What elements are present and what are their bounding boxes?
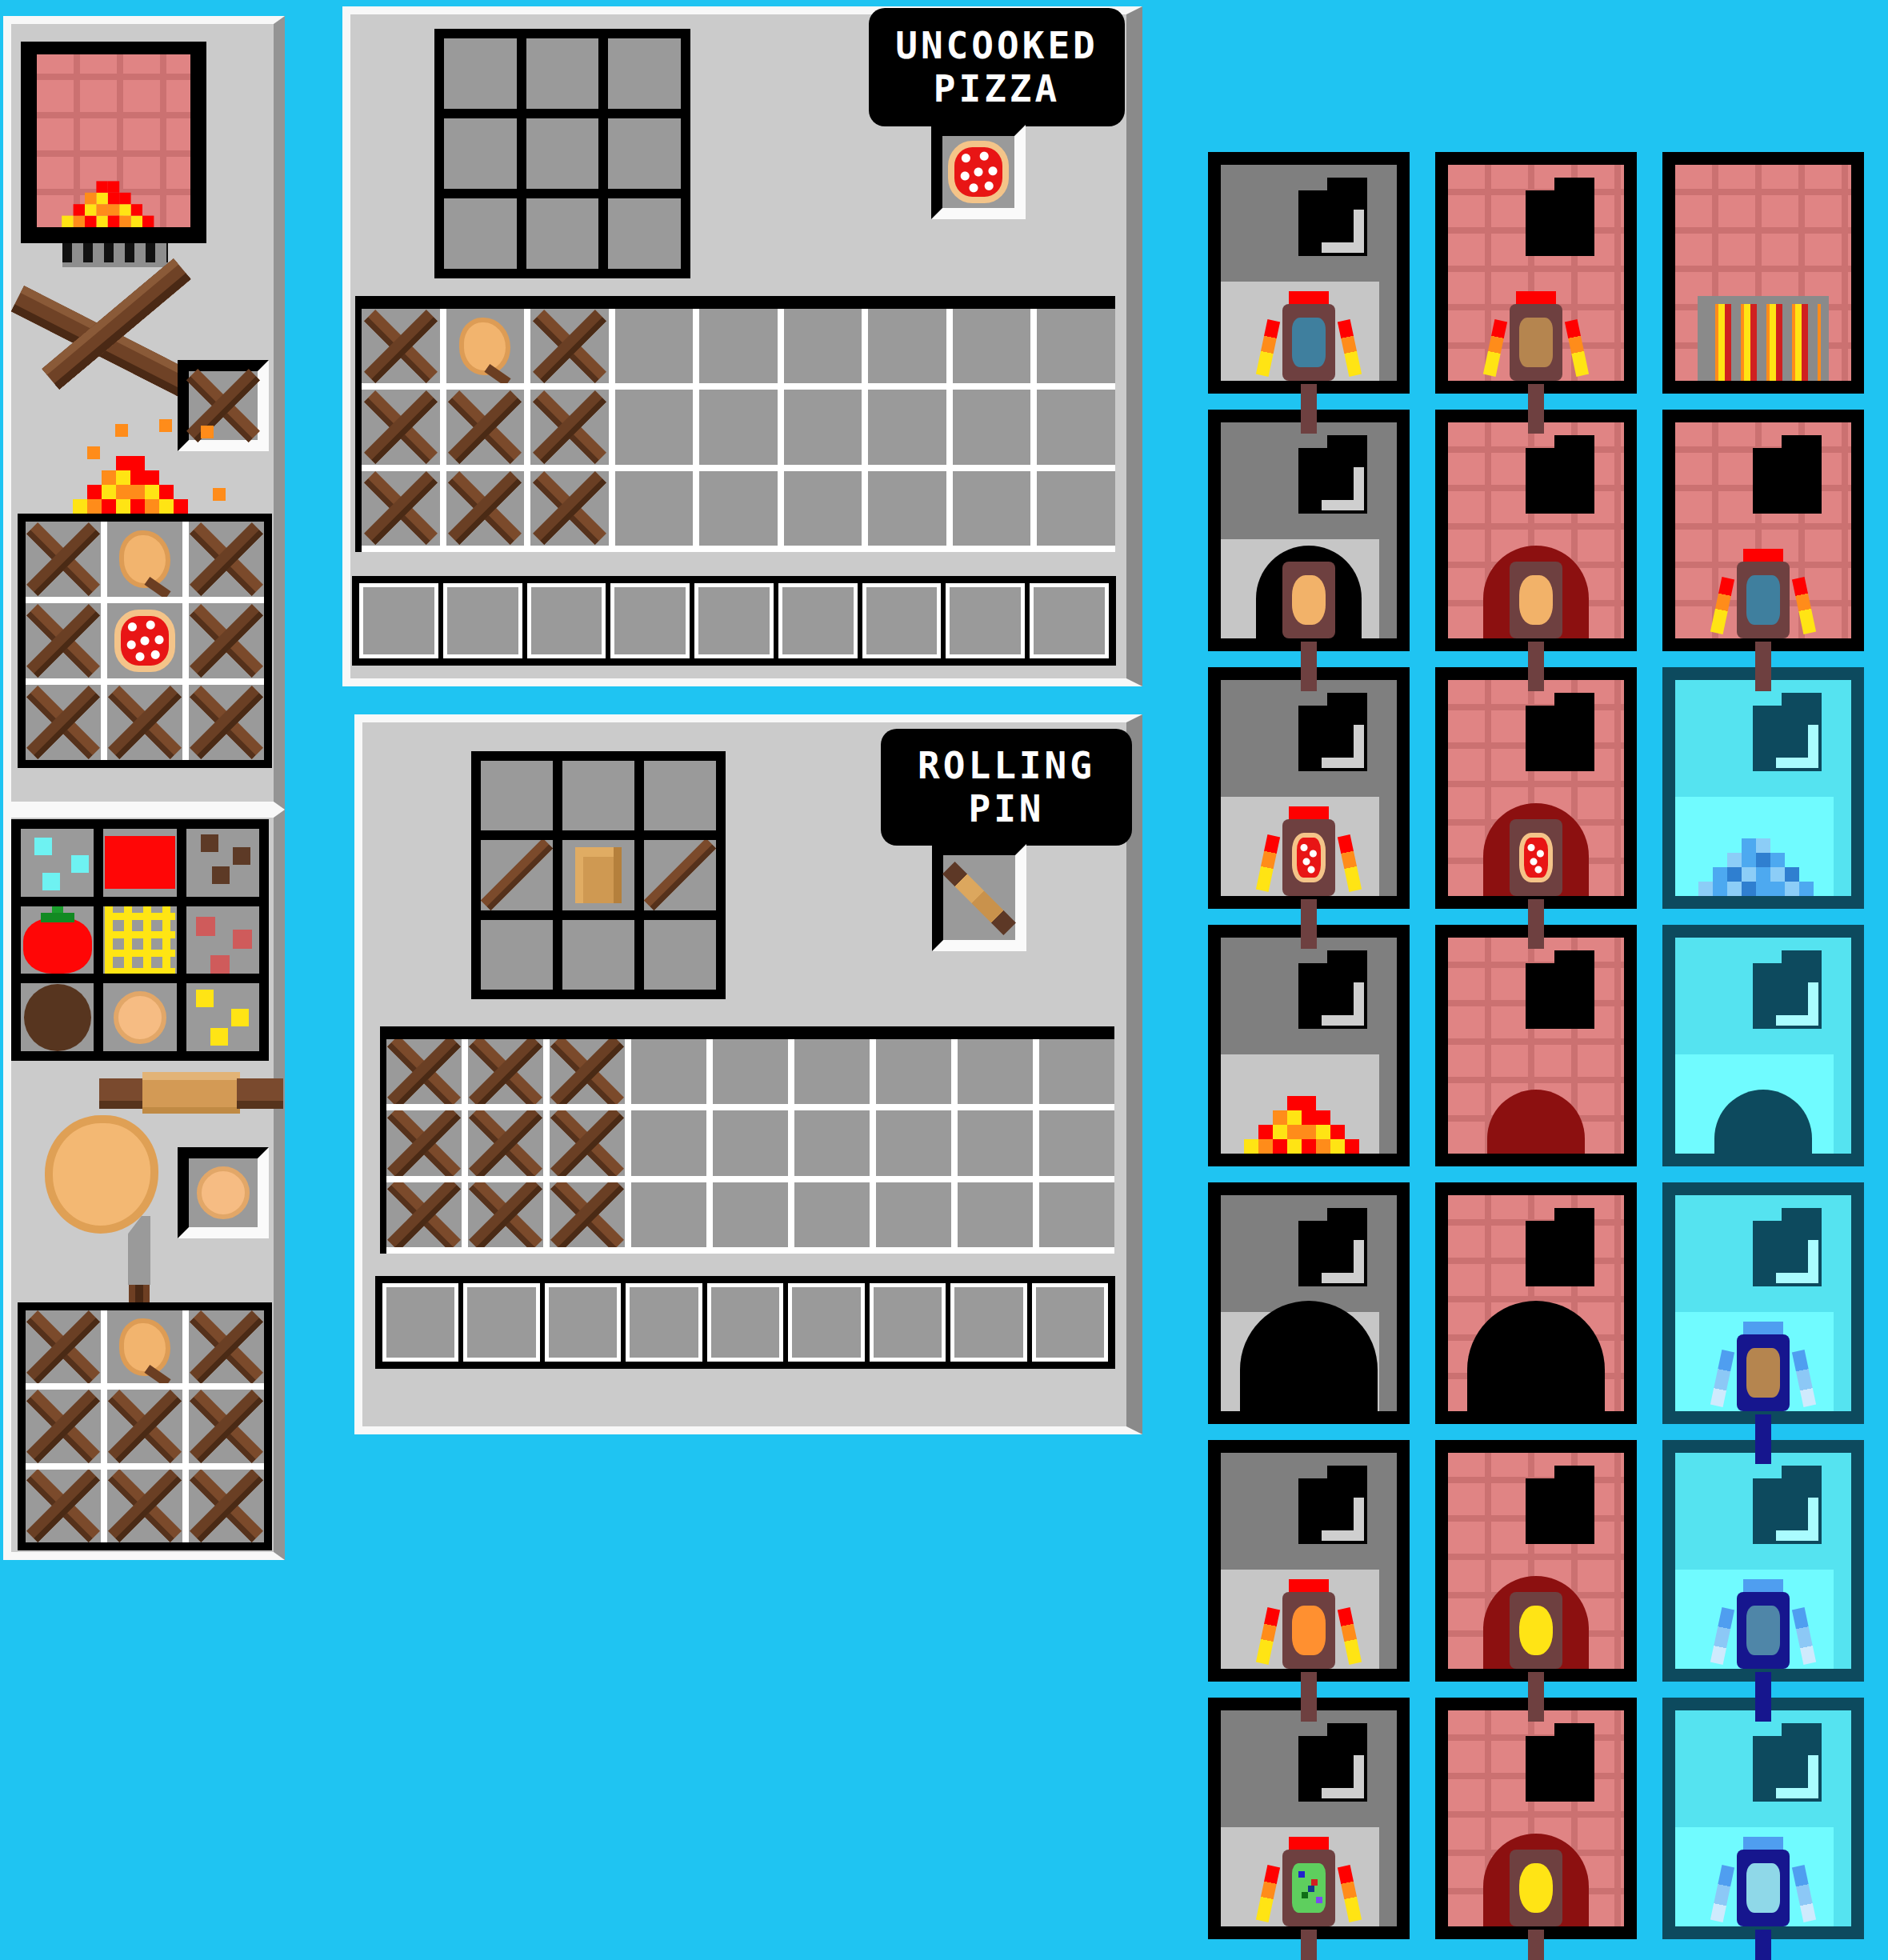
tomato-slot[interactable] xyxy=(21,906,94,974)
oven-mouth-icon xyxy=(1526,190,1594,256)
blue-item-icon xyxy=(1746,575,1780,625)
oven-tile-gray-r7c1[interactable] xyxy=(1208,1698,1410,1939)
stick-slot[interactable] xyxy=(107,1390,182,1462)
empty-slot[interactable] xyxy=(713,1110,788,1175)
empty-slot[interactable] xyxy=(526,198,599,269)
brick-oven-body xyxy=(1448,422,1624,638)
plank-slot[interactable] xyxy=(562,840,634,910)
stick-slot[interactable] xyxy=(26,522,101,597)
empty-slot[interactable] xyxy=(794,1110,870,1175)
oven-mouth-icon xyxy=(1526,1221,1594,1286)
stick-item-icon xyxy=(192,606,261,675)
stick-slot[interactable] xyxy=(468,1182,543,1247)
empty-slot[interactable] xyxy=(874,1287,942,1358)
oven-mouth-icon xyxy=(1298,1221,1367,1286)
stick-item-icon xyxy=(471,1039,540,1104)
gray-oven-body xyxy=(1221,422,1397,638)
oven-mouth-icon xyxy=(1753,1478,1822,1544)
empty-slot[interactable] xyxy=(615,390,694,464)
gray-oven-body xyxy=(1221,1710,1397,1926)
stick-slot[interactable] xyxy=(362,471,440,546)
empty-slot[interactable] xyxy=(363,587,434,654)
fire-icon xyxy=(1241,1086,1377,1154)
oven-tile-gray-r6c1[interactable] xyxy=(1208,1440,1410,1682)
empty-slot[interactable] xyxy=(1036,1287,1104,1358)
dough-item-icon xyxy=(1292,575,1326,625)
tan-item-icon xyxy=(1519,318,1553,367)
empty-slot[interactable] xyxy=(958,1039,1033,1104)
empty-slot[interactable] xyxy=(876,1110,951,1175)
oven-tile-brick-r1c3[interactable] xyxy=(1662,152,1864,394)
plank-item-icon xyxy=(575,847,622,903)
empty-slot[interactable] xyxy=(615,471,694,546)
oven-mouth-icon xyxy=(1753,1221,1822,1286)
empty-slot[interactable] xyxy=(1034,587,1105,654)
gray-oven-body xyxy=(1221,680,1397,896)
empty-slot[interactable] xyxy=(713,1039,788,1104)
stick-slot[interactable] xyxy=(550,1110,625,1175)
pizza-peel-icon xyxy=(1737,1334,1790,1411)
ember-mound-feature xyxy=(1487,1090,1585,1154)
rolling-pin-item-icon xyxy=(941,859,1018,936)
gray-oven-body xyxy=(1221,1453,1397,1669)
pizza-item-icon xyxy=(1519,833,1553,882)
stick-item-icon xyxy=(535,312,604,381)
pizza-peel-icon xyxy=(1282,304,1335,381)
pizza-peel-icon xyxy=(1282,1592,1335,1669)
stick1-slot[interactable] xyxy=(644,840,716,910)
stick-item-icon xyxy=(366,474,435,542)
flame-icon xyxy=(1743,549,1783,562)
peel-handle-icon[interactable] xyxy=(1755,642,1771,691)
empty-slot[interactable] xyxy=(953,471,1031,546)
dough-slot[interactable] xyxy=(107,522,182,597)
empty-slot[interactable] xyxy=(713,1182,788,1247)
pizza-peel-icon xyxy=(1510,304,1562,381)
peel-handle-icon[interactable] xyxy=(1301,642,1317,691)
pizza-peel-icon xyxy=(1737,1850,1790,1926)
paddle-feature xyxy=(1282,562,1335,638)
stick-item-icon xyxy=(450,474,519,542)
pepperoni-slot[interactable] xyxy=(186,906,259,974)
empty-slot[interactable] xyxy=(644,761,716,830)
cyan-specks-slot[interactable] xyxy=(21,829,94,897)
oven-mouth-icon xyxy=(1526,706,1594,771)
empty-slot[interactable] xyxy=(1037,390,1115,464)
peel-handle-icon[interactable] xyxy=(1528,384,1544,434)
stick-slot[interactable] xyxy=(26,1390,101,1462)
oven-brick-interior xyxy=(37,54,190,227)
empty-slot[interactable] xyxy=(794,1182,870,1247)
paddle-feature xyxy=(1737,1850,1790,1926)
empty-slot[interactable] xyxy=(467,1287,535,1358)
ember-mound-icon xyxy=(1487,1090,1585,1154)
crafting-grid-rolling-pin xyxy=(471,751,726,999)
empty-slot[interactable] xyxy=(699,390,778,464)
oven-tile-gray-r4c1[interactable] xyxy=(1208,925,1410,1166)
empty-slot[interactable] xyxy=(526,38,599,109)
stick-slot[interactable] xyxy=(386,1039,462,1104)
output-slot-rolling-pin[interactable] xyxy=(932,844,1026,951)
stick-item-icon xyxy=(553,1182,622,1247)
cheese-item-icon xyxy=(105,906,175,974)
oven-tile-gray-r1c1[interactable] xyxy=(1208,152,1410,394)
empty-slot[interactable] xyxy=(630,1287,698,1358)
empty-slot[interactable] xyxy=(953,309,1031,383)
stick-slot[interactable] xyxy=(446,390,525,464)
stick-slot[interactable] xyxy=(362,390,440,464)
paddle-feature xyxy=(1737,562,1790,638)
stick-slot[interactable] xyxy=(550,1039,625,1104)
oven-arch-icon xyxy=(1467,1301,1605,1411)
empty-slot[interactable] xyxy=(444,118,517,189)
cheese-bits-slot[interactable] xyxy=(186,983,259,1051)
empty-slot[interactable] xyxy=(526,118,599,189)
cheese-bits-item-icon xyxy=(188,983,257,1051)
paddle-feature xyxy=(1282,304,1335,381)
oven-tile-brick-r2c2[interactable] xyxy=(1435,410,1637,651)
label-line: UNCOOKED xyxy=(895,27,1098,64)
flame-icon xyxy=(1289,291,1329,304)
peel-handle-icon[interactable] xyxy=(1528,899,1544,949)
brown-specks-item-icon xyxy=(188,829,257,897)
stick-slot[interactable] xyxy=(107,1470,182,1542)
oven-mouth-icon xyxy=(1753,963,1822,1029)
pizza-peel-icon xyxy=(1282,562,1335,638)
flame-icon xyxy=(1483,319,1507,377)
stick-item-icon xyxy=(390,1110,458,1175)
oven-tile-ice-r5c3[interactable] xyxy=(1662,1182,1864,1424)
empty-slot[interactable] xyxy=(792,1287,860,1358)
stick-item-icon xyxy=(553,1110,622,1175)
peel-handle-icon[interactable] xyxy=(1301,384,1317,434)
empty-slot[interactable] xyxy=(876,1182,951,1247)
tomato-item-icon xyxy=(23,918,92,974)
empty-slot[interactable] xyxy=(784,390,862,464)
empty-slot[interactable] xyxy=(782,587,854,654)
stick-slot[interactable] xyxy=(26,1310,101,1383)
flame-icon xyxy=(1565,319,1589,377)
brick-oven-body xyxy=(1448,165,1624,381)
peel-handle-icon[interactable] xyxy=(1528,1672,1544,1722)
empty-slot[interactable] xyxy=(562,761,634,830)
rolling-pin-icon xyxy=(101,1072,282,1118)
pixel-art-canvas: UNCOOKED PIZZA ROLLING PIN xyxy=(0,0,1888,1960)
stick-slot[interactable] xyxy=(468,1039,543,1104)
ice-feature xyxy=(1695,829,1831,896)
brick-oven-body xyxy=(1448,680,1624,896)
pizza-peel-icon xyxy=(1510,1592,1562,1669)
pizza-peel-icon xyxy=(1510,819,1562,896)
stick-item-icon xyxy=(471,1110,540,1175)
pizza-peel-icon xyxy=(1282,819,1335,896)
stick-item-icon xyxy=(29,525,98,594)
panel-uncooked-pizza-recipe: UNCOOKED PIZZA xyxy=(342,6,1142,686)
empty-slot[interactable] xyxy=(794,1039,870,1104)
oven-mouth-icon xyxy=(1526,963,1594,1029)
empty-slot[interactable] xyxy=(631,1039,706,1104)
oven-tile-ice-r3c3[interactable] xyxy=(1662,667,1864,909)
empty-slot[interactable] xyxy=(614,587,686,654)
flame-icon xyxy=(1289,806,1329,819)
dough-ball-slot[interactable] xyxy=(178,1147,269,1238)
stick-slot[interactable] xyxy=(189,1390,264,1462)
oven-mouth-icon xyxy=(1298,1478,1367,1544)
stick-item-icon xyxy=(192,525,261,594)
stick-slot[interactable] xyxy=(446,471,525,546)
stick-item-icon xyxy=(366,393,435,462)
empty-slot[interactable] xyxy=(644,920,716,990)
peel-handle-icon[interactable] xyxy=(1301,1930,1317,1960)
hotbar xyxy=(375,1276,1115,1369)
flame-icon xyxy=(1792,577,1816,634)
cheese-slot[interactable] xyxy=(103,906,176,974)
stick-slot[interactable] xyxy=(26,685,101,760)
oven-tile-ice-r6c3[interactable] xyxy=(1662,1440,1864,1682)
stick-slot[interactable] xyxy=(26,603,101,678)
oven-mouth-icon xyxy=(1753,448,1822,514)
oven-tile-gray-r3c1[interactable] xyxy=(1208,667,1410,909)
empty-slot[interactable] xyxy=(631,1182,706,1247)
empty-slot[interactable] xyxy=(631,1110,706,1175)
crafting-grid-empty xyxy=(434,29,690,278)
steel-item-icon xyxy=(1746,1606,1780,1655)
empty-slot[interactable] xyxy=(868,390,946,464)
stick-slot[interactable] xyxy=(530,309,609,383)
stick1-item-icon xyxy=(482,841,551,910)
cyan-specks-item-icon xyxy=(23,829,92,897)
peel-handle-icon[interactable] xyxy=(1301,1672,1317,1722)
empty-slot[interactable] xyxy=(1037,309,1115,383)
stick-slot[interactable] xyxy=(386,1110,462,1175)
spark-icon xyxy=(213,488,226,501)
panel-ingredients xyxy=(3,810,285,1560)
oven-tile-brick-r1c2[interactable] xyxy=(1435,152,1637,394)
peel-handle-icon[interactable] xyxy=(1755,1672,1771,1722)
spark-icon xyxy=(159,419,172,432)
empty-slot[interactable] xyxy=(868,471,946,546)
paddle-feature xyxy=(1510,1592,1562,1669)
green-item-icon xyxy=(1292,1863,1326,1913)
empty-slot[interactable] xyxy=(868,309,946,383)
empty-slot[interactable] xyxy=(1039,1110,1114,1175)
stick-item-icon xyxy=(192,1471,261,1540)
empty-slot[interactable] xyxy=(699,471,778,546)
 xyxy=(1756,882,1770,896)
stick-item-icon xyxy=(535,393,604,462)
peel-handle-icon[interactable] xyxy=(1755,1414,1771,1464)
stick-item-icon xyxy=(390,1039,458,1104)
paddle-feature xyxy=(1510,1850,1562,1926)
empty-slot[interactable] xyxy=(950,587,1021,654)
crafting-grid-uncooked-pizza xyxy=(18,514,272,768)
empty-slot[interactable] xyxy=(699,309,778,383)
chocolate-slot[interactable] xyxy=(21,983,94,1051)
stick-slot[interactable] xyxy=(362,309,440,383)
peel-handle-icon[interactable] xyxy=(1528,642,1544,691)
ice-mound-feature xyxy=(1714,1090,1812,1154)
empty-slot[interactable] xyxy=(784,471,862,546)
empty-slot[interactable] xyxy=(954,1287,1022,1358)
brick-oven-body xyxy=(1448,1453,1624,1669)
frost-icon xyxy=(1743,1837,1783,1850)
empty-slot[interactable] xyxy=(608,38,681,109)
oven-tile-ice-r7c3[interactable] xyxy=(1662,1698,1864,1939)
oven-tile-brick-r6c2[interactable] xyxy=(1435,1440,1637,1682)
oven-mouth-icon xyxy=(1526,1736,1594,1802)
oven-tile-brick-r4c2[interactable] xyxy=(1435,925,1637,1166)
empty-slot[interactable] xyxy=(958,1110,1033,1175)
peel-handle-icon[interactable] xyxy=(1755,1930,1771,1960)
oven-tile-gray-r5c1[interactable] xyxy=(1208,1182,1410,1424)
stick1-slot[interactable] xyxy=(481,840,553,910)
stick-slot[interactable] xyxy=(386,1182,462,1247)
brick-oven-body xyxy=(1448,1710,1624,1926)
empty-slot[interactable] xyxy=(953,390,1031,464)
stick-slot[interactable] xyxy=(189,685,264,760)
stick-slot[interactable] xyxy=(530,390,609,464)
empty-slot[interactable] xyxy=(386,1287,454,1358)
oven-tile-gray-r2c1[interactable] xyxy=(1208,410,1410,651)
pizza-slot[interactable] xyxy=(107,603,182,678)
panel-rolling-pin-recipe: ROLLING PIN xyxy=(354,714,1142,1434)
empty-slot[interactable] xyxy=(608,198,681,269)
rolling-pin-label: ROLLING PIN xyxy=(881,729,1132,846)
empty-slot[interactable] xyxy=(444,38,517,109)
stick-slot[interactable] xyxy=(189,1470,264,1542)
empty-slot[interactable] xyxy=(481,761,553,830)
oven-tile-brick-r7c2[interactable] xyxy=(1435,1698,1637,1939)
stick-item-icon xyxy=(29,606,98,675)
empty-slot[interactable] xyxy=(958,1182,1033,1247)
stick-slot[interactable] xyxy=(550,1182,625,1247)
dough-slot[interactable] xyxy=(446,309,525,383)
pizza-item-icon xyxy=(114,610,175,672)
oven-tile-ice-r4c3[interactable] xyxy=(1662,925,1864,1166)
empty-slot[interactable] xyxy=(562,920,634,990)
stick-slot[interactable] xyxy=(178,360,269,451)
empty-slot[interactable] xyxy=(1039,1039,1114,1104)
paddle-feature xyxy=(1510,304,1562,381)
dough-item-icon xyxy=(119,1318,170,1376)
paddle-feature xyxy=(1282,819,1335,896)
dough-ball-slot[interactable] xyxy=(103,983,176,1051)
orange-item-icon xyxy=(1292,1606,1326,1655)
brick-oven-body xyxy=(1448,1195,1624,1411)
brick-oven-body xyxy=(1675,165,1851,381)
empty-slot[interactable] xyxy=(1039,1182,1114,1247)
empty-slot[interactable] xyxy=(698,587,770,654)
paddle-feature xyxy=(1282,1592,1335,1669)
stick-slot[interactable] xyxy=(26,1470,101,1542)
panel-oven-scene xyxy=(3,16,285,810)
oven-arch-icon xyxy=(1240,1301,1378,1411)
peel-handle-icon[interactable] xyxy=(1528,1930,1544,1960)
output-slot-uncooked-pizza[interactable] xyxy=(931,125,1026,219)
dough-slot[interactable] xyxy=(107,1310,182,1383)
empty-slot[interactable] xyxy=(447,587,518,654)
flame-icon xyxy=(1289,1837,1329,1850)
label-line: PIZZA xyxy=(934,70,1060,107)
oven-mouth-icon xyxy=(1753,706,1822,771)
flame-icon xyxy=(1289,1579,1329,1592)
stick-item-icon xyxy=(471,1182,540,1247)
paddle-feature xyxy=(1737,1592,1790,1669)
open-arch-feature xyxy=(1467,1301,1605,1411)
stick-slot[interactable] xyxy=(189,603,264,678)
empty-slot[interactable] xyxy=(481,920,553,990)
stick-item-icon xyxy=(390,1182,458,1247)
empty-slot[interactable] xyxy=(866,587,938,654)
pizza-peel-icon xyxy=(1510,562,1562,638)
stick-item-icon xyxy=(29,1471,98,1540)
ice-oven-body xyxy=(1675,1453,1851,1669)
 xyxy=(1302,1139,1316,1154)
stick-item-icon xyxy=(450,393,519,462)
oven-mouth-icon xyxy=(1298,1736,1367,1802)
grate-feature xyxy=(1698,296,1829,381)
empty-slot[interactable] xyxy=(608,118,681,189)
oven-tile-brick-r3c2[interactable] xyxy=(1435,667,1637,909)
oven-tile-brick-r5c2[interactable] xyxy=(1435,1182,1637,1424)
dough-item-icon xyxy=(459,318,510,375)
empty-slot[interactable] xyxy=(1037,471,1115,546)
oven-mouth-icon xyxy=(1753,1736,1822,1802)
peel-handle-icon[interactable] xyxy=(1301,899,1317,949)
oven-mouth-icon xyxy=(1526,1478,1594,1544)
gray-oven-body xyxy=(1221,165,1397,381)
empty-slot[interactable] xyxy=(615,309,694,383)
stick-slot[interactable] xyxy=(189,1310,264,1383)
ice-oven-body xyxy=(1675,1710,1851,1926)
flame-icon xyxy=(1516,291,1556,304)
empty-slot[interactable] xyxy=(531,587,602,654)
brown-specks-slot[interactable] xyxy=(186,829,259,897)
stick-slot[interactable] xyxy=(530,471,609,546)
empty-slot[interactable] xyxy=(784,309,862,383)
stick-slot[interactable] xyxy=(468,1110,543,1175)
blue-item-icon xyxy=(1292,318,1326,367)
pepperoni-item-icon xyxy=(188,906,257,974)
ice-pile-icon xyxy=(1695,829,1831,896)
chocolate-item-icon xyxy=(24,984,91,1051)
empty-slot[interactable] xyxy=(549,1287,617,1358)
empty-slot[interactable] xyxy=(711,1287,779,1358)
oven-tile-brick-r2c3[interactable] xyxy=(1662,410,1864,651)
uncooked-pizza-label: UNCOOKED PIZZA xyxy=(869,8,1125,126)
empty-slot[interactable] xyxy=(444,198,517,269)
paddle-feature xyxy=(1282,1850,1335,1926)
stick-slot[interactable] xyxy=(107,685,182,760)
fire-grate-icon xyxy=(1698,296,1829,381)
empty-slot[interactable] xyxy=(876,1039,951,1104)
oven-tile-grid xyxy=(1208,152,1888,1960)
ingredients-grid xyxy=(11,819,269,1061)
stick1-item-icon xyxy=(646,841,714,910)
ice-oven-body xyxy=(1675,680,1851,896)
pizza-peel-icon xyxy=(1282,1850,1335,1926)
yellow-item-icon xyxy=(1519,1863,1553,1913)
stick-slot[interactable] xyxy=(189,522,264,597)
gray-oven-body xyxy=(1221,1195,1397,1411)
inventory-grid xyxy=(380,1026,1114,1254)
stick-item-icon xyxy=(29,1313,98,1382)
sauce-slot[interactable] xyxy=(103,829,176,897)
brick-oven-body xyxy=(1675,422,1851,638)
crafting-grid-sticks xyxy=(18,1302,272,1550)
stick-item-icon xyxy=(189,371,258,440)
brick-oven-body xyxy=(1448,938,1624,1154)
